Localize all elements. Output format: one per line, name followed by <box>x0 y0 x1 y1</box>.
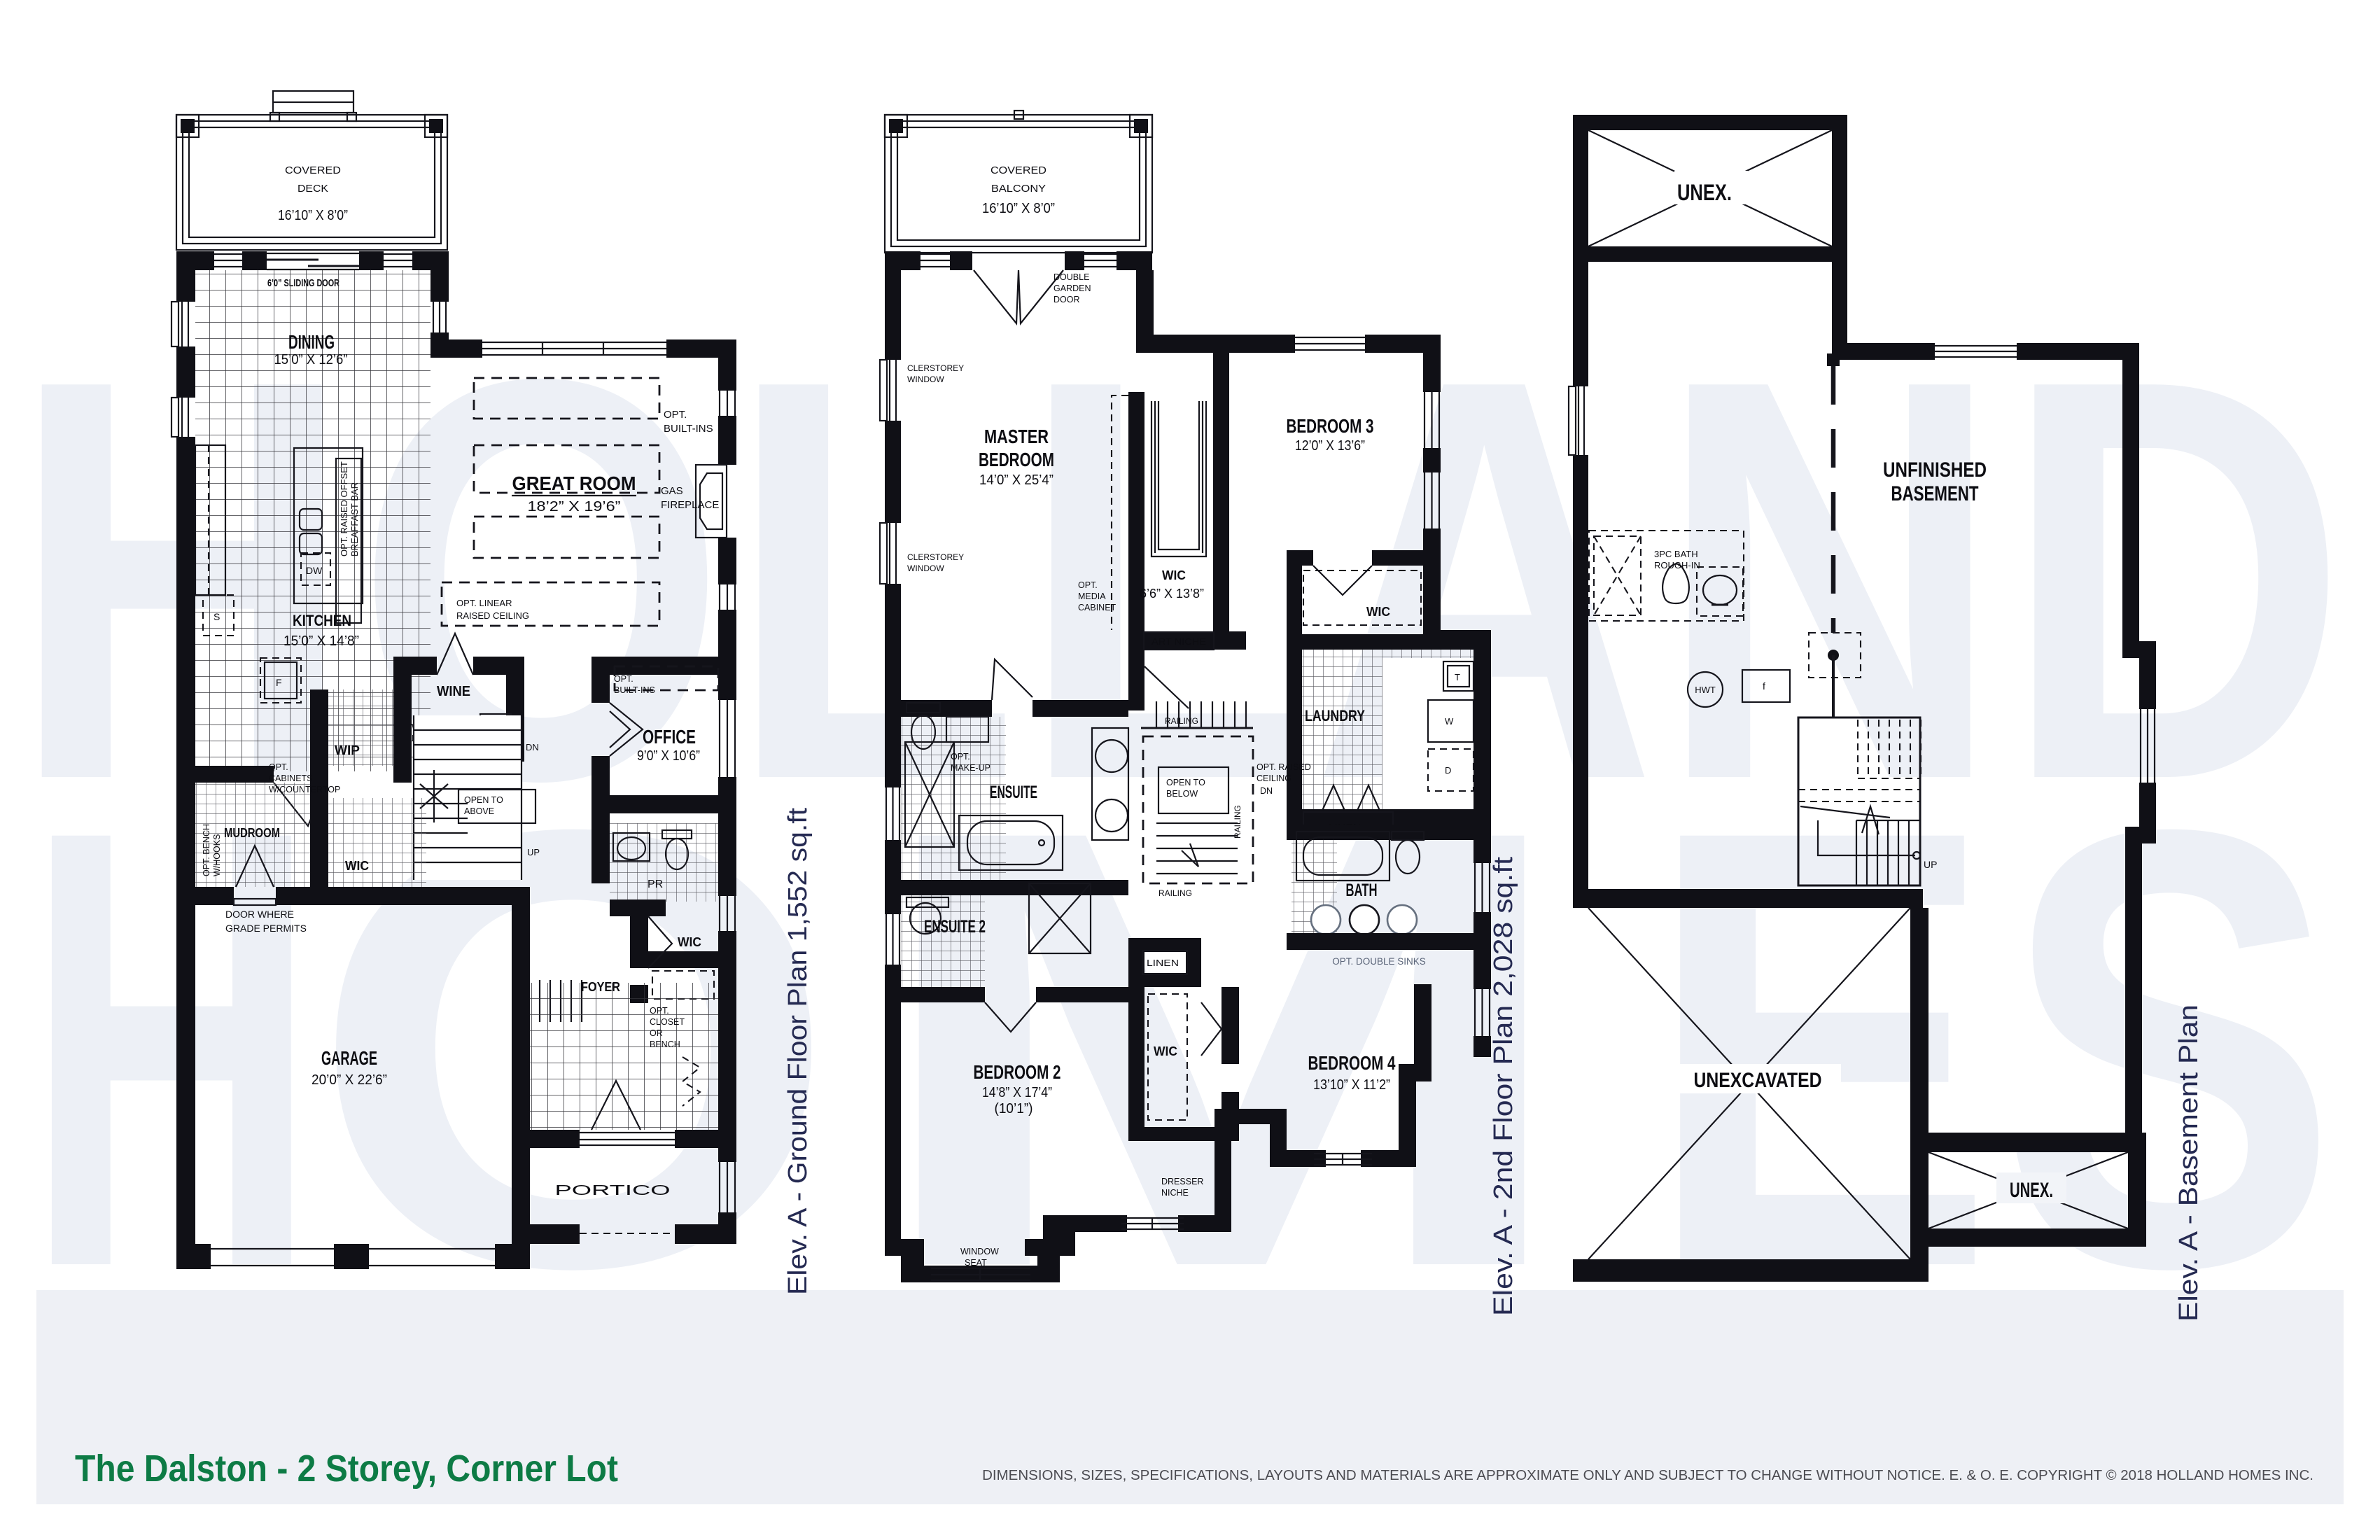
svg-text:BEDROOM 3: BEDROOM 3 <box>1287 415 1374 437</box>
svg-text:DOOR WHERE: DOOR WHERE <box>225 909 294 920</box>
svg-text:LAUNDRY: LAUNDRY <box>1305 707 1365 724</box>
svg-text:RAILING: RAILING <box>1165 716 1198 726</box>
svg-text:RAILING: RAILING <box>1158 888 1192 898</box>
svg-text:GRADE PERMITS: GRADE PERMITS <box>225 923 307 934</box>
svg-text:LINEN: LINEN <box>1147 958 1179 968</box>
svg-text:DN: DN <box>1260 786 1273 796</box>
svg-text:OPT. RAISED OFFSET: OPT. RAISED OFFSET <box>339 461 349 556</box>
svg-text:6’6” X 13’8”: 6’6” X 13’8” <box>1140 587 1204 601</box>
svg-text:T: T <box>1455 672 1460 682</box>
svg-text:3PC BATH: 3PC BATH <box>1654 549 1698 559</box>
svg-text:GARAGE: GARAGE <box>321 1047 377 1069</box>
svg-text:WIC: WIC <box>1366 605 1390 619</box>
svg-text:9’0” X 10’6”: 9’0” X 10’6” <box>637 748 700 764</box>
svg-text:UP: UP <box>1924 859 1937 870</box>
svg-text:BATH: BATH <box>1346 881 1378 900</box>
svg-text:DOOR: DOOR <box>1053 295 1080 304</box>
svg-text:GREAT ROOM: GREAT ROOM <box>512 472 636 494</box>
svg-text:12’0” X 13’6”: 12’0” X 13’6” <box>1295 438 1365 454</box>
svg-text:GAS: GAS <box>661 485 683 497</box>
svg-text:PR: PR <box>647 878 663 890</box>
svg-text:OPT. RAISED: OPT. RAISED <box>1256 762 1311 772</box>
svg-text:CLERSTOREY: CLERSTOREY <box>907 363 964 373</box>
svg-text:NICHE: NICHE <box>1161 1188 1189 1198</box>
svg-text:ROUGH-IN: ROUGH-IN <box>1654 560 1700 570</box>
svg-text:CABINETS: CABINETS <box>269 773 313 783</box>
svg-text:UNEX.: UNEX. <box>2010 1179 2053 1202</box>
svg-text:14’0” X 25’4”: 14’0” X 25’4” <box>979 472 1053 488</box>
svg-text:WINDOW: WINDOW <box>907 563 944 573</box>
svg-text:OPEN TO: OPEN TO <box>464 795 503 805</box>
svg-text:DECK: DECK <box>297 183 328 195</box>
svg-text:DINING: DINING <box>288 331 335 353</box>
svg-text:Elev. A - 2nd Floor Plan 2,02: Elev. A - 2nd Floor Plan 2,028 sq.ft <box>1489 857 1518 1316</box>
svg-text:DRESSER: DRESSER <box>1161 1177 1203 1186</box>
svg-text:f: f <box>1763 680 1765 692</box>
svg-text:20’0” X 22’6”: 20’0” X 22’6” <box>311 1072 387 1088</box>
svg-text:DW: DW <box>306 565 323 576</box>
svg-text:W/HOOKS: W/HOOKS <box>212 834 222 876</box>
svg-text:DN: DN <box>526 742 539 752</box>
svg-text:MASTER: MASTER <box>984 426 1049 447</box>
svg-text:BASEMENT: BASEMENT <box>1891 482 1979 505</box>
svg-text:18’2” X 19’6”: 18’2” X 19’6” <box>528 499 621 514</box>
svg-text:UNEXCAVATED: UNEXCAVATED <box>1694 1069 1822 1092</box>
svg-text:BENCH: BENCH <box>650 1039 680 1049</box>
svg-text:WIP: WIP <box>335 743 360 757</box>
svg-text:WIC: WIC <box>345 859 369 873</box>
svg-text:KITCHEN: KITCHEN <box>293 612 351 629</box>
svg-text:CLERSTOREY: CLERSTOREY <box>907 552 964 562</box>
svg-text:16’10” X 8’0”: 16’10” X 8’0” <box>278 208 348 223</box>
svg-text:MUDROOM: MUDROOM <box>224 826 280 840</box>
svg-text:Elev. A - Ground Floor Plan 1: Elev. A - Ground Floor Plan 1,552 sq.ft <box>783 808 813 1295</box>
svg-text:MEDIA: MEDIA <box>1078 591 1106 601</box>
svg-text:RAISED CEILING: RAISED CEILING <box>456 610 529 621</box>
svg-text:F: F <box>276 677 282 688</box>
svg-text:BEDROOM 4: BEDROOM 4 <box>1308 1052 1396 1074</box>
svg-text:UNFINISHED: UNFINISHED <box>1883 458 1987 482</box>
svg-text:FIREPLACE: FIREPLACE <box>661 499 719 511</box>
svg-text:D: D <box>1445 765 1451 776</box>
svg-text:15’0” X 14’8”: 15’0” X 14’8” <box>283 633 359 649</box>
svg-text:UNEX.: UNEX. <box>1677 180 1732 205</box>
svg-text:WIC: WIC <box>1162 568 1186 582</box>
svg-text:OPT.: OPT. <box>1078 580 1098 590</box>
svg-text:RAILING: RAILING <box>1233 805 1242 839</box>
svg-text:BALCONY: BALCONY <box>991 183 1046 195</box>
svg-text:OR: OR <box>650 1028 663 1038</box>
svg-text:BELOW: BELOW <box>1166 789 1198 799</box>
svg-text:ENSUITE: ENSUITE <box>990 783 1037 802</box>
svg-text:15’0” X 12’6”: 15’0” X 12’6” <box>274 352 348 367</box>
svg-text:The Dalston - 2 Storey, Corner: The Dalston - 2 Storey, Corner Lot <box>75 1448 618 1490</box>
svg-text:BUILT-INS: BUILT-INS <box>664 423 713 435</box>
svg-text:CABINET: CABINET <box>1078 603 1116 612</box>
svg-text:HWT: HWT <box>1695 685 1716 695</box>
svg-text:OFFICE: OFFICE <box>643 726 696 748</box>
svg-text:Elev. A - Basement Plan: Elev. A - Basement Plan <box>2174 1004 2204 1322</box>
svg-text:WIC: WIC <box>678 935 701 949</box>
svg-text:ART NICHE: ART NICHE <box>1151 636 1206 647</box>
svg-text:(10’1”): (10’1”) <box>995 1101 1033 1116</box>
svg-text:WINE: WINE <box>437 684 470 699</box>
svg-text:BUILT-INS: BUILT-INS <box>614 685 655 695</box>
svg-text:WINDOW: WINDOW <box>907 374 944 384</box>
svg-text:SEAT: SEAT <box>965 1258 987 1268</box>
svg-text:16’10” X 8’0”: 16’10” X 8’0” <box>982 201 1055 216</box>
svg-text:CLOSET: CLOSET <box>650 1017 685 1027</box>
svg-text:BEDROOM 2: BEDROOM 2 <box>974 1061 1061 1083</box>
svg-text:OPT. BENCH: OPT. BENCH <box>202 824 211 876</box>
svg-text:BREAFFAST BAR: BREAFFAST BAR <box>349 482 360 556</box>
svg-text:W: W <box>1445 716 1454 727</box>
svg-text:ENSUITE 2: ENSUITE 2 <box>924 917 986 937</box>
svg-text:OPEN TO: OPEN TO <box>1166 778 1205 787</box>
svg-text:OPT.: OPT. <box>951 752 970 762</box>
svg-text:OPT.: OPT. <box>614 674 633 684</box>
svg-text:DIMENSIONS, SIZES, SPECIFICATI: DIMENSIONS, SIZES, SPECIFICATIONS, LAYOU… <box>982 1467 2313 1483</box>
svg-text:COVERED: COVERED <box>285 164 341 176</box>
svg-text:14’8” X 17’4”: 14’8” X 17’4” <box>982 1085 1052 1100</box>
svg-text:OPT.: OPT. <box>664 409 687 421</box>
svg-text:GARDEN: GARDEN <box>1053 283 1091 293</box>
svg-text:COVERED: COVERED <box>990 164 1046 176</box>
svg-text:OPT. LINEAR: OPT. LINEAR <box>456 598 512 608</box>
svg-text:ABOVE: ABOVE <box>464 806 494 816</box>
svg-text:WIC: WIC <box>1154 1044 1177 1058</box>
svg-text:FOYER: FOYER <box>581 980 620 994</box>
svg-text:PORTICO: PORTICO <box>555 1183 671 1198</box>
svg-text:MAKE-UP: MAKE-UP <box>951 763 990 773</box>
svg-text:BEDROOM: BEDROOM <box>979 449 1054 470</box>
svg-text:13’10” X 11’2”: 13’10” X 11’2” <box>1313 1077 1390 1093</box>
svg-text:CEILING: CEILING <box>1256 773 1291 783</box>
svg-text:S: S <box>213 611 220 622</box>
svg-text:DOUBLE: DOUBLE <box>1053 272 1089 282</box>
svg-text:WINDOW: WINDOW <box>960 1247 999 1256</box>
svg-text:OPT.: OPT. <box>650 1006 669 1016</box>
svg-text:OPT.: OPT. <box>269 762 288 772</box>
svg-text:UP: UP <box>527 847 540 857</box>
svg-text:OPT. DOUBLE SINKS: OPT. DOUBLE SINKS <box>1332 956 1426 967</box>
